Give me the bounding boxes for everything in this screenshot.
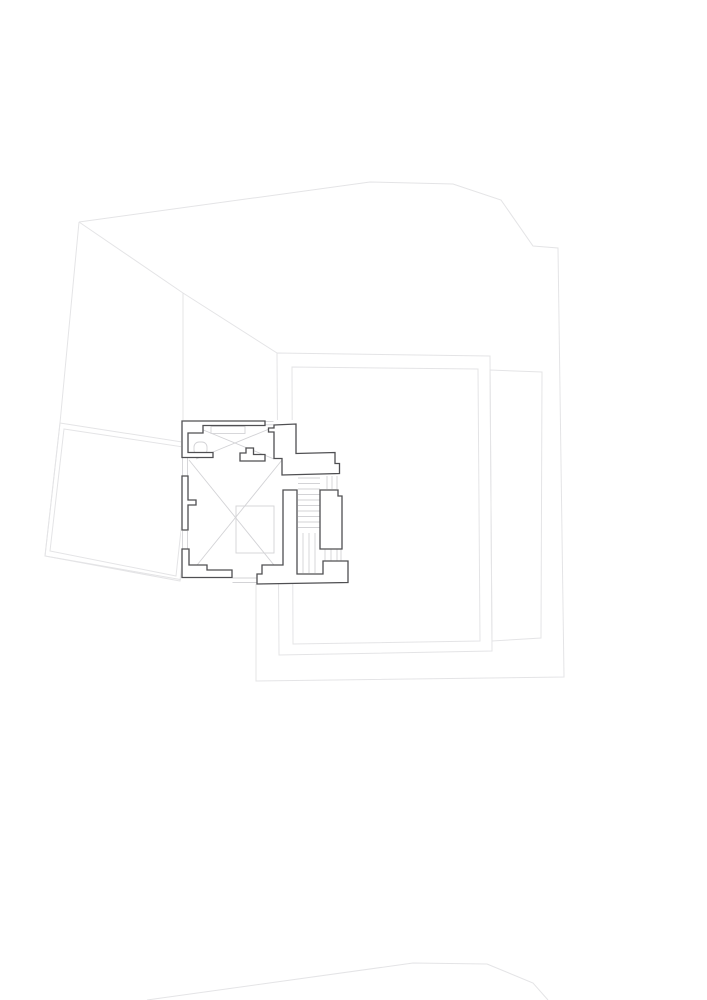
- wall-stair-right: [320, 490, 342, 549]
- architectural-drawing: [0, 0, 707, 1000]
- plan-drawing: [0, 0, 707, 1000]
- paper-background: [0, 0, 707, 1000]
